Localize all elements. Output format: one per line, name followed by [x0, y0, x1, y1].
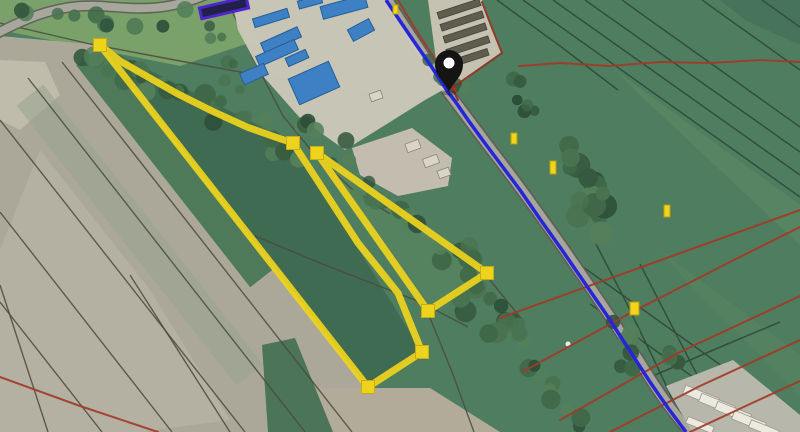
- tree: [205, 33, 216, 44]
- tree: [514, 75, 527, 88]
- pin-hole: [444, 58, 455, 69]
- tree: [479, 324, 498, 343]
- tree: [512, 326, 528, 342]
- tree: [307, 122, 324, 139]
- tree: [215, 95, 227, 107]
- tree: [578, 168, 598, 188]
- tree: [596, 187, 610, 201]
- tree: [229, 59, 238, 68]
- tree: [68, 9, 80, 21]
- tree: [219, 75, 231, 87]
- tree: [157, 20, 170, 33]
- tree: [338, 132, 355, 149]
- tree: [217, 33, 226, 42]
- tree: [342, 153, 356, 167]
- parcel-marker[interactable]: [511, 133, 517, 144]
- tree: [258, 112, 274, 128]
- parcel-marker[interactable]: [664, 205, 670, 217]
- parcel-marker[interactable]: [550, 161, 556, 174]
- tree: [101, 65, 114, 78]
- tree: [126, 18, 143, 35]
- tree: [521, 99, 533, 111]
- tree: [204, 21, 215, 32]
- tree: [52, 8, 64, 20]
- tree: [494, 299, 508, 313]
- tree: [512, 95, 523, 106]
- tree: [241, 111, 252, 122]
- parcel-marker[interactable]: [393, 5, 398, 14]
- satellite-map-canvas[interactable]: [0, 0, 800, 432]
- tree: [541, 390, 560, 409]
- tree: [561, 149, 579, 167]
- map-viewport[interactable]: [0, 0, 800, 432]
- tree: [235, 85, 245, 95]
- tree: [589, 222, 613, 246]
- parcel-marker[interactable]: [630, 302, 639, 315]
- tree: [177, 1, 194, 18]
- tree: [571, 191, 589, 209]
- tree: [100, 18, 114, 32]
- tree: [14, 3, 30, 19]
